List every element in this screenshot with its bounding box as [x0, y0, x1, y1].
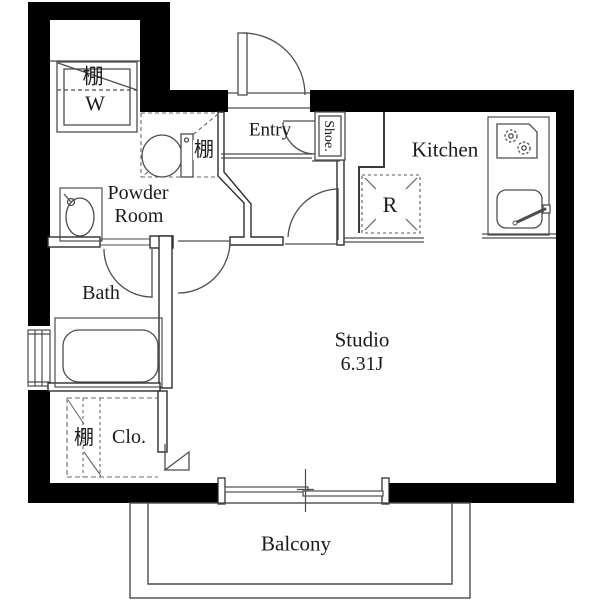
label-shelf-washer: 棚 [83, 67, 104, 88]
label-refrigerator: R [383, 194, 398, 216]
toilet [142, 134, 193, 177]
label-entry: Entry [249, 121, 291, 140]
label-bath: Bath [82, 283, 120, 303]
bathtub [63, 330, 158, 382]
sliding-glass-door [218, 469, 389, 512]
label-closet: Clo. [112, 427, 146, 447]
exterior-walls [28, 2, 574, 503]
label-powder-room-line1: Powder [107, 183, 168, 203]
label-washing-machine: W [85, 94, 105, 115]
label-balcony: Balcony [261, 534, 331, 555]
label-studio: Studio [335, 330, 390, 351]
window [28, 330, 50, 386]
label-shelf-closet: 棚 [74, 428, 94, 448]
gas-stove [497, 124, 537, 158]
kitchen-nook-wall [359, 112, 384, 233]
label-kitchen: Kitchen [412, 140, 478, 161]
kitchen-sink [497, 190, 550, 228]
label-shelf-toilet: 棚 [193, 140, 215, 160]
closet-opening-marker [165, 444, 189, 470]
floor-plan: 棚 W Entry Shoe. Kitchen 棚 Powder Room R … [0, 0, 600, 600]
label-powder-room-line2: Room [115, 206, 164, 226]
label-shoe-cabinet: Shoe. [321, 120, 335, 152]
label-studio-size: 6.31J [341, 354, 384, 374]
wash-basin [64, 194, 94, 236]
